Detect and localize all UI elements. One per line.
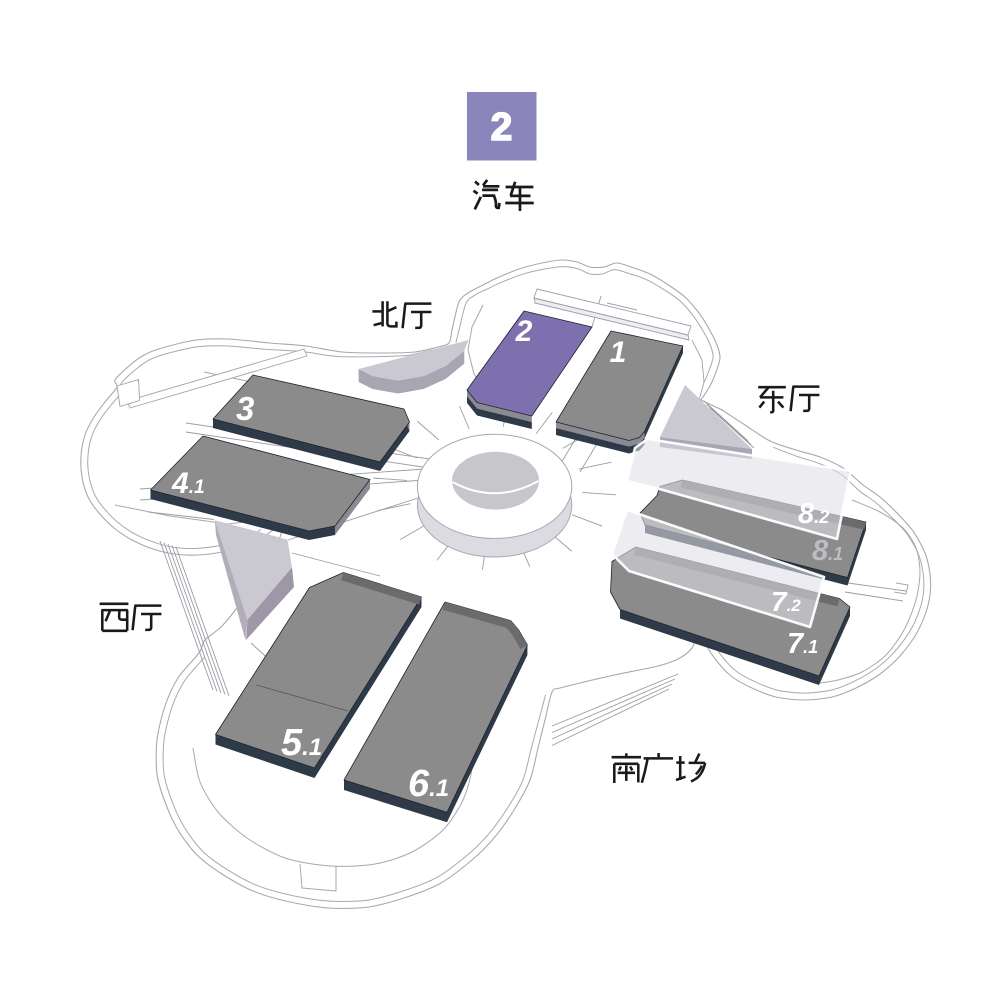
svg-text:3: 3: [236, 390, 254, 427]
svg-text:2: 2: [491, 106, 513, 149]
svg-text:1: 1: [610, 336, 627, 369]
svg-text:2: 2: [515, 315, 533, 348]
